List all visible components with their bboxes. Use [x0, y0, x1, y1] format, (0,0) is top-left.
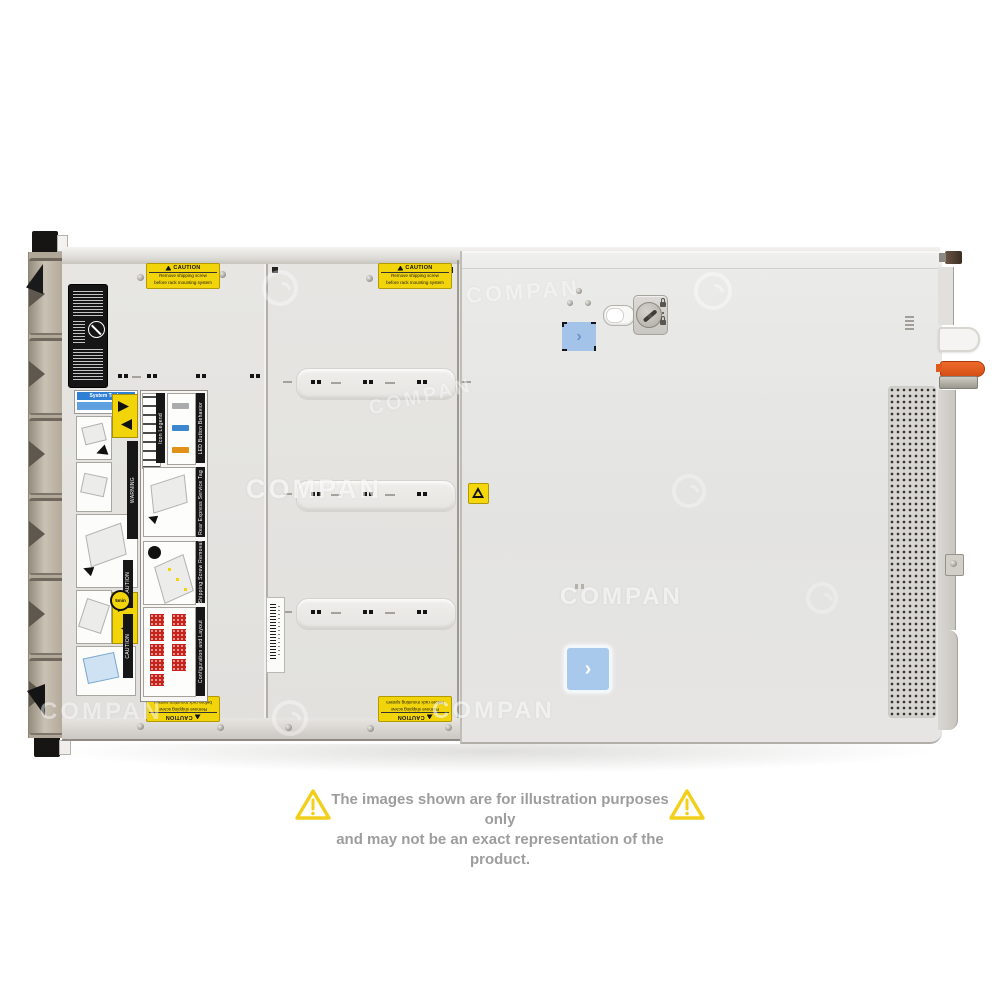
disclaimer: The images shown are for illustration pu…: [330, 790, 670, 870]
warning-triangle-icon: [669, 788, 705, 821]
warning-bar: WARNING: [127, 441, 138, 539]
rack-ear-top: [32, 231, 58, 254]
led-behavior-bar: LED Button Behavior: [196, 393, 205, 463]
vent-mark: [311, 380, 321, 384]
drive-bay-block: [150, 674, 164, 686]
mark-dash: [385, 382, 395, 384]
section-title: Configuration and Layout: [198, 620, 204, 683]
mark-dash: [385, 494, 395, 496]
drive-bay-block: [172, 614, 186, 626]
drive-carrier-handle: [29, 338, 64, 415]
keylock: [636, 302, 662, 328]
drive-bay-block: [150, 644, 164, 656]
server-shadow: [36, 744, 952, 774]
vent-mark: [196, 374, 206, 378]
drive-bay-block: [172, 629, 186, 641]
screw: [445, 724, 452, 731]
caution-line1: Remove shipping screw: [159, 707, 207, 712]
engraved-mark: [905, 316, 914, 330]
diagram-sketch: [80, 473, 108, 498]
warning-triangle-icon: [295, 788, 331, 821]
lock-icon: [660, 320, 666, 325]
diagram-sketch: [81, 423, 107, 446]
five-min-text: 5min: [115, 598, 126, 603]
vent-mark: [363, 380, 373, 384]
right-side-wall-lower: [938, 630, 958, 730]
watermark-logo: [806, 582, 838, 614]
label-fine-print: [73, 349, 103, 381]
mini-warning-sticker: [468, 483, 489, 504]
service-diagram: [76, 462, 112, 512]
release-latch-orange: [940, 361, 985, 377]
led-orange: [172, 447, 189, 453]
caution-title: CAUTION: [173, 265, 200, 271]
diagram-sketch-blue: [83, 652, 120, 684]
screw-base: [939, 253, 946, 262]
watermark-text: COMPAN: [246, 474, 382, 505]
drive-bay-block: [172, 659, 186, 671]
caution-line1: Remove shipping screw: [159, 273, 207, 278]
vent-mark: [363, 610, 373, 614]
screw-point: [168, 568, 171, 571]
side-screw-bracket: [945, 554, 964, 576]
barcode: [270, 604, 276, 660]
caution-line2: before rack mounting system: [154, 280, 212, 285]
lock-dot: [662, 312, 664, 314]
shipping-screw-bar: Shipping Screw Removal: [196, 541, 205, 603]
barcode-label: [266, 597, 285, 673]
label-fine-print: [73, 321, 85, 345]
shipping-screw-box: [143, 541, 196, 605]
screw-point: [184, 588, 187, 591]
yellow-warning-sticker: [112, 394, 138, 438]
blue-chevron-sticker: ›: [562, 322, 596, 351]
mark-dash: [132, 376, 141, 378]
watermark-logo: [694, 272, 732, 310]
vent-mark: [118, 374, 128, 378]
led-behavior-box: [167, 393, 196, 465]
led-blue: [172, 425, 189, 431]
caution-title: CAUTION: [165, 714, 192, 720]
vent-mark: [250, 374, 260, 378]
arrow-icon: [118, 401, 129, 412]
rack-ear-bottom: [34, 735, 60, 757]
caution-line2: before rack mounting system: [386, 280, 444, 285]
drive-carrier-handle: [29, 498, 64, 575]
blue-chevron-sticker-large: ›: [564, 645, 612, 693]
cover-recess-handle: [296, 598, 456, 630]
vent-mark: [417, 492, 427, 496]
screw: [585, 300, 591, 306]
drive-carrier-handle: [29, 258, 64, 335]
release-button: [606, 308, 624, 323]
watermark-logo: [262, 270, 298, 306]
five-min-badge: 5min: [110, 590, 131, 611]
mark-dash: [331, 382, 341, 384]
screw: [950, 560, 957, 567]
shipping-screw: [945, 251, 962, 264]
keyhole-center: [648, 314, 652, 318]
vent-mark: [311, 610, 321, 614]
caution-sticker: CAUTION Remove shipping screwbefore rack…: [378, 263, 452, 289]
caution-bar-text: CAUTION: [125, 634, 131, 659]
mark-dash: [283, 381, 292, 383]
unlock-icon: [660, 302, 666, 307]
screw: [137, 274, 144, 281]
vent-mark: [147, 374, 157, 378]
section-title: Rear Express Service Tag: [198, 470, 204, 535]
barcode-text: [278, 606, 280, 656]
cover-lock-plate: [633, 295, 668, 335]
screw-icon: [148, 546, 161, 559]
drive-carrier-handle: [29, 418, 64, 495]
warning-triangle-icon: [397, 266, 403, 271]
right-side-wall: [938, 390, 956, 630]
caution-sticker: CAUTION Remove shipping screwbefore rack…: [146, 263, 220, 289]
caution-line1: Remove shipping screw: [391, 273, 439, 278]
product-photo-canvas: CAUTION Remove shipping screwbefore rack…: [0, 0, 1000, 1000]
cover-release-slot: [603, 305, 635, 326]
side-bracket: [938, 327, 980, 352]
arrow-icon: [147, 513, 159, 525]
chevron-right-icon: ›: [576, 329, 581, 345]
drive-bay-block: [150, 659, 164, 671]
section-title: Shipping Screw Removal: [198, 541, 204, 603]
service-tag-bar: Rear Express Service Tag: [196, 467, 205, 537]
mark-dash: [331, 612, 341, 614]
latch-nub: [936, 364, 942, 372]
vent-mark: [417, 610, 427, 614]
watermark-text: COMPAN: [560, 583, 683, 611]
icon-legend-bar: Icon Legend: [156, 393, 165, 463]
config-layout-box: [143, 607, 196, 697]
metal-clip: [939, 376, 978, 389]
main-cover-seam: [457, 260, 459, 718]
crossed-circle-icon: [88, 321, 105, 338]
drive-bay-block: [172, 644, 186, 656]
section-title: Icon Legend: [158, 413, 164, 444]
watermark-text: COMPAN: [40, 698, 163, 726]
server-sketch: [150, 474, 187, 514]
disclaimer-line1: The images shown are for illustration pu…: [330, 790, 670, 830]
drive-bay-block: [150, 614, 164, 626]
front-drive-bay-strip: [28, 252, 64, 738]
cover-edge-line: [462, 268, 942, 269]
screw: [217, 724, 224, 731]
chevron-right-icon: ›: [585, 659, 592, 679]
screw: [366, 275, 373, 282]
service-tag-box: [143, 467, 196, 537]
warning-triangle-icon: [195, 715, 201, 720]
screw: [367, 725, 374, 732]
screw: [219, 271, 226, 278]
disclaimer-line2: and may not be an exact representation o…: [330, 830, 670, 870]
right-side-wall-upper: [938, 267, 954, 325]
section-title: LED Button Behavior: [198, 402, 204, 454]
drive-carrier-handle: [29, 578, 64, 655]
arrow-icon: [121, 419, 132, 430]
diagram-sketch: [78, 598, 110, 634]
screw-point: [176, 578, 179, 581]
caution-title: CAUTION: [397, 714, 424, 720]
chassis-sketch: [154, 554, 194, 604]
caution-bar: CAUTION: [123, 614, 133, 678]
led-gray: [172, 403, 189, 409]
warning-bar-text: WARNING: [130, 477, 136, 503]
label-fine-print: [73, 291, 103, 317]
caution-title: CAUTION: [405, 265, 432, 271]
watermark-logo: [272, 700, 308, 736]
config-layout-bar: Configuration and Layout: [196, 607, 205, 696]
rack-ear-bottom-tab: [59, 740, 71, 755]
mark-dash: [385, 612, 395, 614]
watermark-text: COMPAN: [432, 697, 555, 725]
service-diagram: [76, 590, 112, 644]
warning-triangle-icon: [165, 266, 171, 271]
regulatory-label: [68, 284, 108, 388]
vent-grid: [888, 386, 936, 718]
watermark-logo: [672, 474, 706, 508]
drive-bay-block: [150, 629, 164, 641]
chassis-sketch: [85, 523, 126, 568]
